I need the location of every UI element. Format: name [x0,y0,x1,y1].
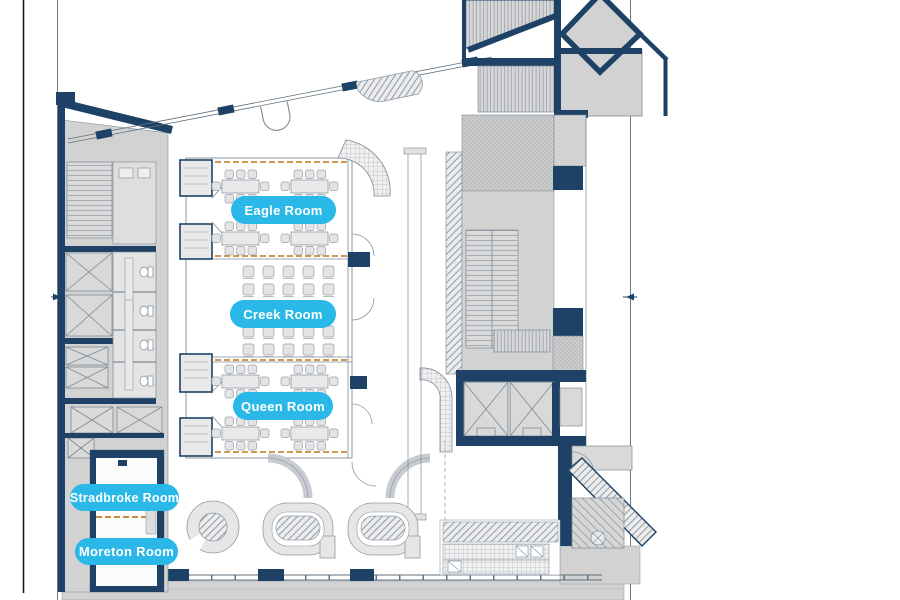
floor-plan-page: Eagle Room Creek Room Queen Room Stradbr… [0,0,900,600]
stairs-southeast [558,446,656,548]
stradbroke-moreton-rooms [90,450,164,592]
room-pill-creek[interactable]: Creek Room [230,300,336,328]
kitchen-bar [440,520,560,575]
section-marker-right [623,294,637,301]
room-pill-moreton[interactable]: Moreton Room [75,538,178,565]
east-core [446,0,667,548]
entry-vestibule [261,101,293,132]
door-swings [352,234,376,486]
u-booth [263,503,335,558]
round-booth [180,501,239,556]
wall-pier [350,376,367,389]
canopy [356,69,424,105]
elevator-icon [464,382,508,436]
banquette-seating [180,501,420,558]
elevator-icon [510,382,554,436]
stairs-west [67,162,112,238]
wall-pier [348,252,370,267]
room-pill-stradbroke[interactable]: Stradbroke Room [70,484,179,511]
toilets [113,252,156,398]
room-pill-queen[interactable]: Queen Room [233,392,333,420]
u-booth [348,503,420,558]
room-pill-eagle[interactable]: Eagle Room [231,196,336,224]
